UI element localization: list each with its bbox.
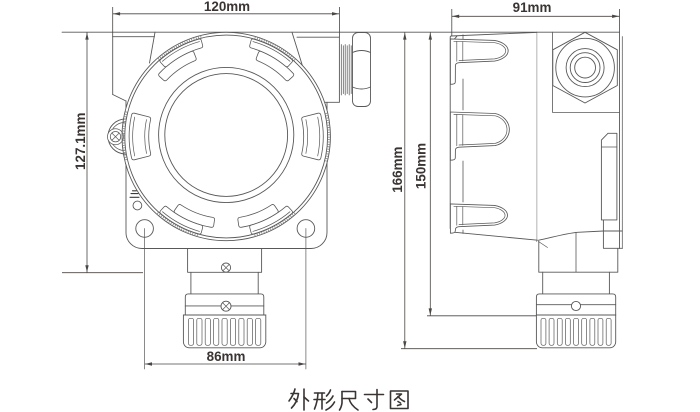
svg-text:127.1mm: 127.1mm: [73, 113, 88, 170]
svg-text:150mm: 150mm: [414, 143, 429, 189]
svg-text:91mm: 91mm: [513, 0, 552, 15]
svg-text:120mm: 120mm: [204, 0, 250, 14]
svg-text:166mm: 166mm: [390, 147, 405, 193]
svg-text:86mm: 86mm: [207, 349, 246, 364]
